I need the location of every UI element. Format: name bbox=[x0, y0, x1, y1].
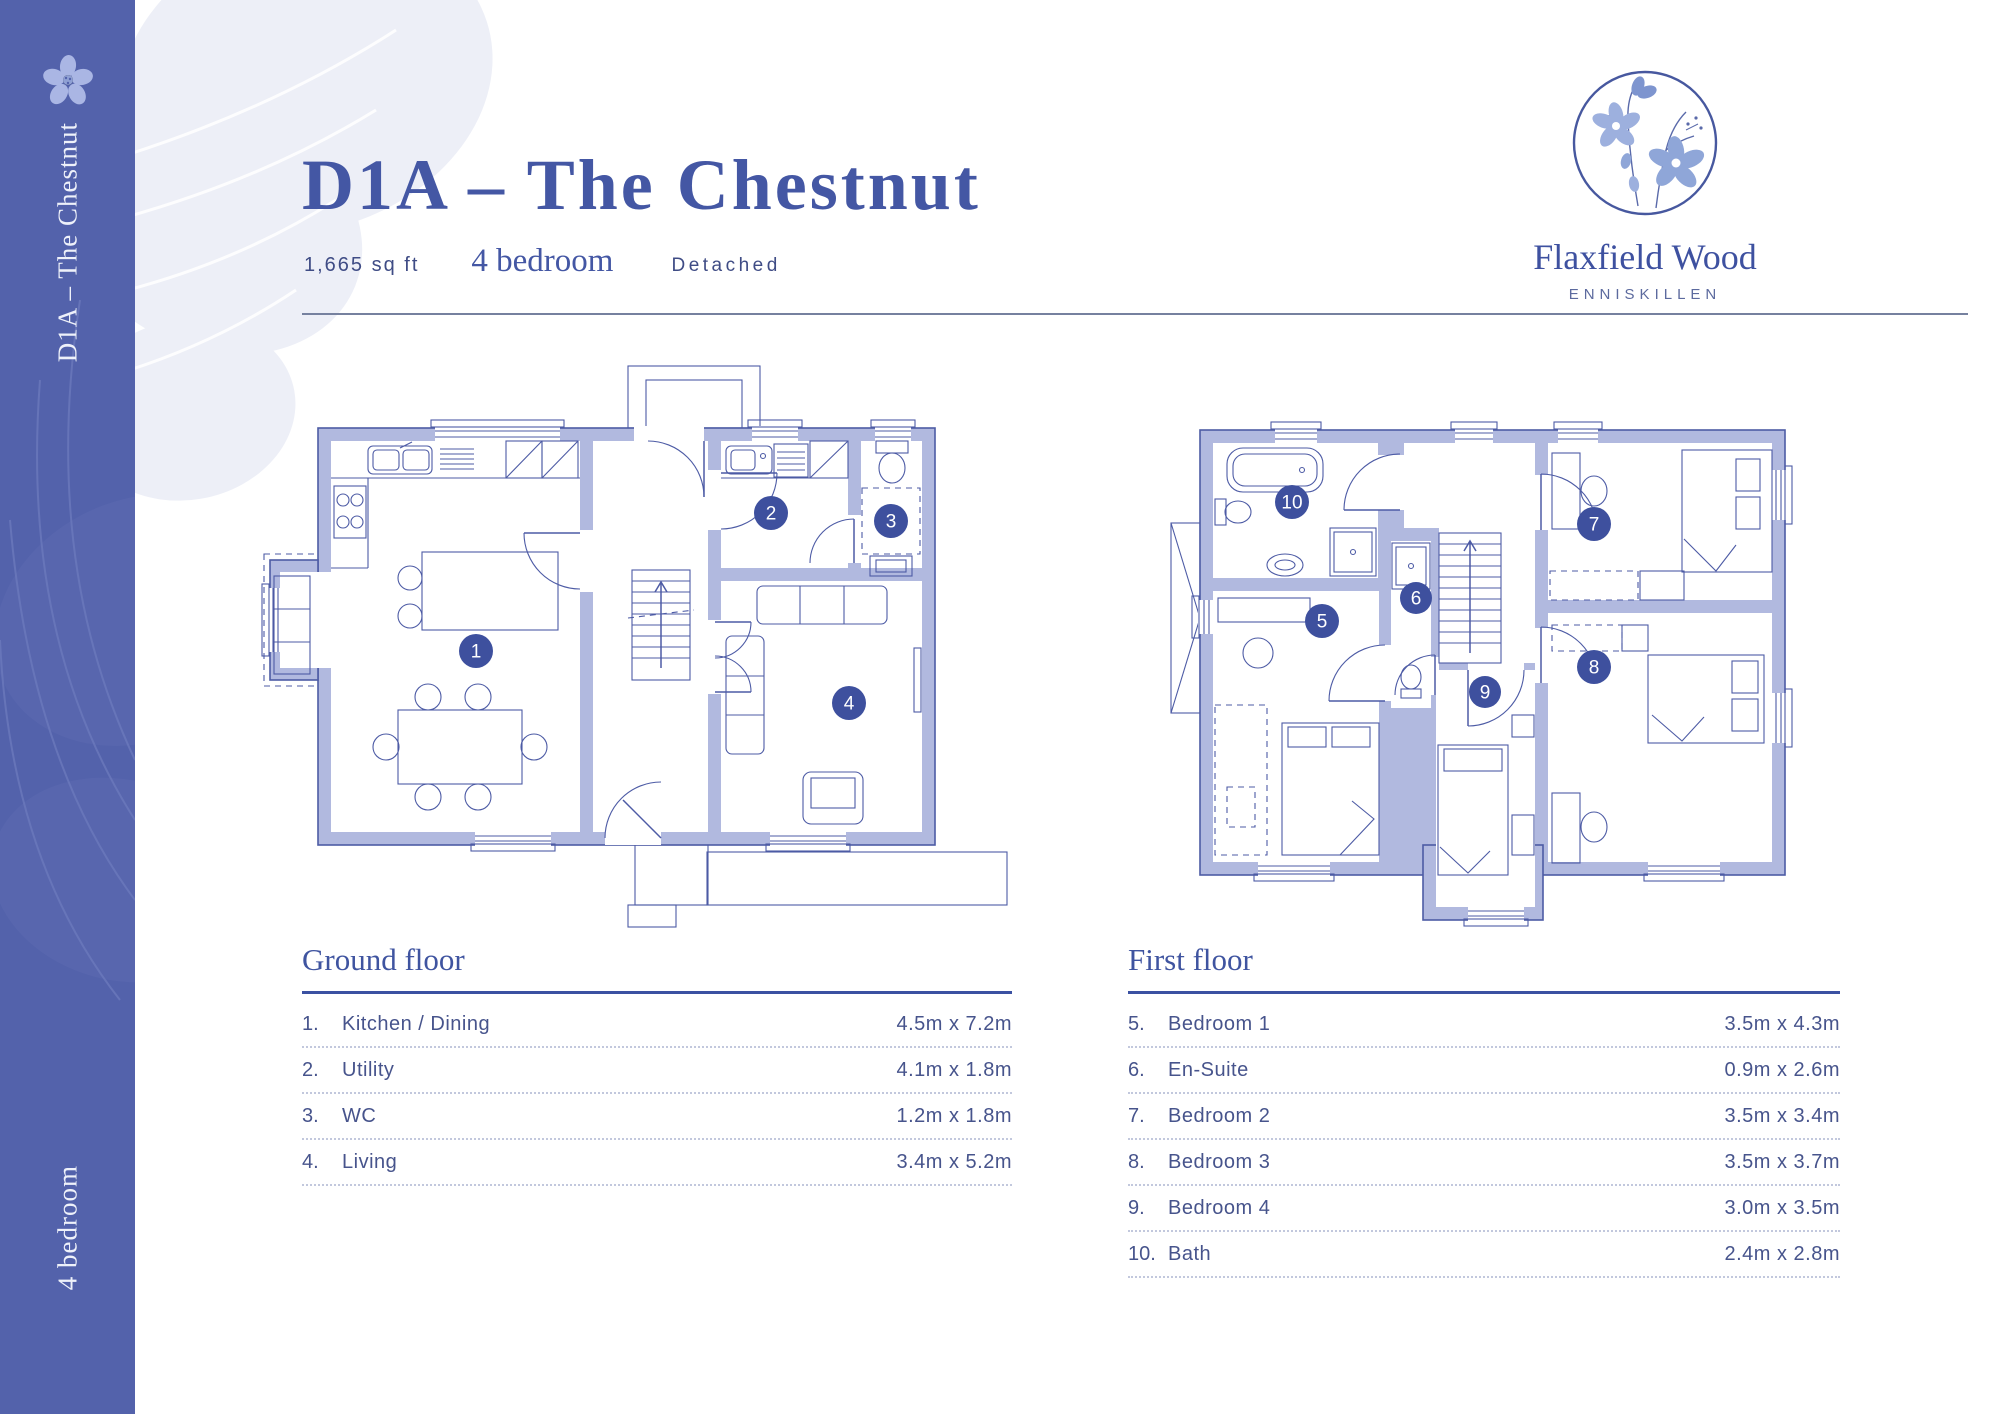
legend-row-dims: 3.4m x 5.2m bbox=[896, 1151, 1012, 1174]
room-marker-9: 9 bbox=[1469, 676, 1501, 708]
legend-row-dims: 0.9m x 2.6m bbox=[1724, 1059, 1840, 1082]
legend-row: 3.WC1.2m x 1.8m bbox=[302, 1094, 1012, 1140]
legend-row-name: Kitchen / Dining bbox=[342, 1013, 896, 1036]
svg-text:8: 8 bbox=[1589, 658, 1600, 679]
legend-row: 10.Bath2.4m x 2.8m bbox=[1128, 1232, 1840, 1278]
svg-text:7: 7 bbox=[1589, 515, 1600, 536]
bedrooms-label: 4 bedroom bbox=[471, 243, 613, 280]
gable-roof-outline bbox=[1171, 523, 1200, 713]
legend-row-num: 8. bbox=[1128, 1151, 1168, 1174]
legend-row-num: 10. bbox=[1128, 1243, 1168, 1266]
legend-row-name: Bath bbox=[1168, 1243, 1724, 1266]
legend-row-num: 6. bbox=[1128, 1059, 1168, 1082]
legend-row: 5.Bedroom 13.5m x 4.3m bbox=[1128, 1002, 1840, 1048]
svg-text:9: 9 bbox=[1480, 683, 1491, 704]
legend-row-num: 1. bbox=[302, 1013, 342, 1036]
legend-row-name: Bedroom 4 bbox=[1168, 1197, 1724, 1220]
room-marker-3: 3 bbox=[874, 504, 908, 538]
room-marker-5: 5 bbox=[1305, 604, 1339, 638]
page-title: D1A – The Chestnut bbox=[302, 144, 981, 227]
legend-row-dims: 3.0m x 3.5m bbox=[1724, 1197, 1840, 1220]
svg-text:6: 6 bbox=[1411, 589, 1422, 610]
legend-row-dims: 3.5m x 4.3m bbox=[1724, 1013, 1840, 1036]
flax-flowers-circle-icon bbox=[1568, 66, 1723, 221]
flax-flower-icon bbox=[39, 52, 97, 110]
legend-row-name: Utility bbox=[342, 1059, 896, 1082]
svg-text:3: 3 bbox=[886, 512, 897, 533]
legend-row-num: 3. bbox=[302, 1105, 342, 1128]
patio-outline bbox=[628, 845, 1007, 927]
header-divider bbox=[302, 313, 1968, 315]
front-porch-outline bbox=[628, 366, 760, 428]
legend-row-num: 4. bbox=[302, 1151, 342, 1174]
legend-row-name: En-Suite bbox=[1168, 1059, 1724, 1082]
legend-rows: 1.Kitchen / Dining4.5m x 7.2m2.Utility4.… bbox=[302, 1002, 1012, 1186]
room-marker-8: 8 bbox=[1577, 650, 1611, 684]
legend-row-dims: 3.5m x 3.4m bbox=[1724, 1105, 1840, 1128]
legend-row: 2.Utility4.1m x 1.8m bbox=[302, 1048, 1012, 1094]
legend-row-dims: 4.1m x 1.8m bbox=[896, 1059, 1012, 1082]
legend-row-name: Bedroom 3 bbox=[1168, 1151, 1724, 1174]
legend-row-name: WC bbox=[342, 1105, 896, 1128]
room-marker-7: 7 bbox=[1577, 507, 1611, 541]
legend-title: First floor bbox=[1128, 942, 1840, 994]
svg-text:1: 1 bbox=[471, 642, 482, 663]
legend-row-name: Bedroom 2 bbox=[1168, 1105, 1724, 1128]
legend-row-dims: 4.5m x 7.2m bbox=[896, 1013, 1012, 1036]
development-logo: Flaxfield Wood ENNISKILLEN bbox=[1490, 66, 1800, 303]
first-floor-legend: First floor 5.Bedroom 13.5m x 4.3m6.En-S… bbox=[1128, 942, 1840, 1278]
room-marker-6: 6 bbox=[1400, 582, 1432, 614]
brochure-page: { "sidebar": { "top_label": "D1A – The C… bbox=[0, 0, 2000, 1414]
svg-text:2: 2 bbox=[766, 504, 777, 525]
svg-text:5: 5 bbox=[1317, 612, 1328, 633]
legend-row: 7.Bedroom 23.5m x 3.4m bbox=[1128, 1094, 1840, 1140]
property-meta: 1,665 sq ft 4 bedroom Detached bbox=[304, 243, 781, 280]
ground-floor-legend: Ground floor 1.Kitchen / Dining4.5m x 7.… bbox=[302, 942, 1012, 1186]
legend-row-num: 9. bbox=[1128, 1197, 1168, 1220]
legend-row: 1.Kitchen / Dining4.5m x 7.2m bbox=[302, 1002, 1012, 1048]
legend-rows: 5.Bedroom 13.5m x 4.3m6.En-Suite0.9m x 2… bbox=[1128, 1002, 1840, 1278]
room-marker-1: 1 bbox=[459, 634, 493, 668]
room-marker-4: 4 bbox=[832, 686, 866, 720]
sidebar: D1A – The Chestnut 4 bedroom bbox=[0, 0, 135, 1414]
walls bbox=[270, 426, 935, 845]
legend-row-name: Bedroom 1 bbox=[1168, 1013, 1724, 1036]
legend-row-dims: 2.4m x 2.8m bbox=[1724, 1243, 1840, 1266]
legend-row: 8.Bedroom 33.5m x 3.7m bbox=[1128, 1140, 1840, 1186]
legend-row-num: 7. bbox=[1128, 1105, 1168, 1128]
logo-name: Flaxfield Wood bbox=[1490, 236, 1800, 278]
svg-text:4: 4 bbox=[844, 694, 855, 715]
legend-row-name: Living bbox=[342, 1151, 896, 1174]
legend-row: 9.Bedroom 43.0m x 3.5m bbox=[1128, 1186, 1840, 1232]
legend-row: 6.En-Suite0.9m x 2.6m bbox=[1128, 1048, 1840, 1094]
ground-floor-plan: 1 2 3 4 bbox=[260, 320, 1020, 940]
svg-text:10: 10 bbox=[1281, 493, 1302, 514]
legend-row-dims: 3.5m x 3.7m bbox=[1724, 1151, 1840, 1174]
type-label: Detached bbox=[671, 255, 780, 277]
logo-location: ENNISKILLEN bbox=[1490, 286, 1800, 303]
room-marker-2: 2 bbox=[754, 496, 788, 530]
legend-row-num: 2. bbox=[302, 1059, 342, 1082]
sidebar-bedroom-label: 4 bedroom bbox=[52, 1165, 83, 1290]
first-floor-plan: 5 6 7 8 9 10 bbox=[1170, 415, 1810, 935]
legend-title: Ground floor bbox=[302, 942, 1012, 994]
legend-row-num: 5. bbox=[1128, 1013, 1168, 1036]
area-label: 1,665 sq ft bbox=[304, 254, 419, 277]
sidebar-plot-title: D1A – The Chestnut bbox=[52, 122, 83, 362]
legend-row: 4.Living3.4m x 5.2m bbox=[302, 1140, 1012, 1186]
room-marker-10: 10 bbox=[1275, 485, 1309, 519]
legend-row-dims: 1.2m x 1.8m bbox=[896, 1105, 1012, 1128]
